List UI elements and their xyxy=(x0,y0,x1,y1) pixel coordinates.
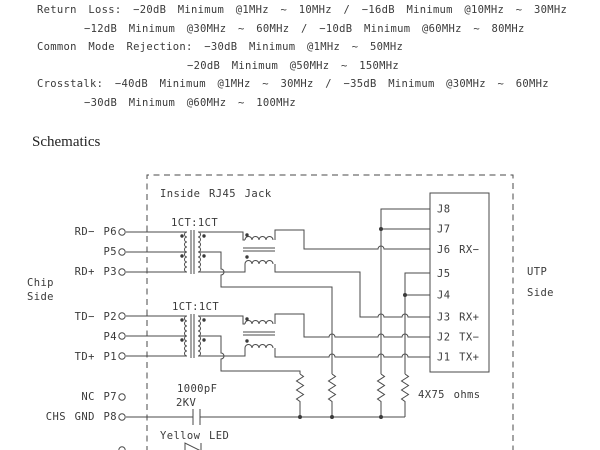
termination-resistors xyxy=(200,374,409,417)
rx-choke xyxy=(243,237,275,264)
pin-label-p7: NC P7 xyxy=(81,391,117,403)
jack-pin-label-j2: J2 TX− xyxy=(437,332,479,344)
rj45-connector-box xyxy=(430,193,489,372)
tx-wiring xyxy=(198,314,430,374)
jack-pin-label-j4: J4 xyxy=(437,290,450,302)
datasheet-page: Return Loss: −20dB Minimum @1MHz ~ 10MHz… xyxy=(0,0,600,450)
chip-pin-circles xyxy=(119,229,125,450)
led-label: Yellow LED xyxy=(160,430,229,442)
jack-pin-label-j5: J5 xyxy=(437,268,450,280)
jack-pin-label-j1: J1 TX+ xyxy=(437,352,479,364)
capacitor-rating-label: 2KV xyxy=(176,397,196,409)
tx-transformer-ratio-label: 1CT:1CT xyxy=(172,301,219,313)
tx-choke xyxy=(243,321,275,348)
resistors-label: 4X75 ohms xyxy=(418,389,481,401)
rx-transformer-ratio-label: 1CT:1CT xyxy=(171,217,218,229)
jack-pin-label-j6: J6 RX− xyxy=(437,244,479,256)
led-diode xyxy=(185,443,201,450)
utp-side-label-1: UTP xyxy=(527,266,547,278)
pin-label-p5: P5 xyxy=(104,246,117,258)
jack-pin-label-j7: J7 xyxy=(437,224,450,236)
rx-wiring xyxy=(198,230,430,374)
utp-side-label-2: Side xyxy=(527,287,554,299)
chassis-capacitor xyxy=(193,409,200,425)
pin-label-p8: CHS GND P8 xyxy=(46,411,117,423)
pin-label-p6: RD− P6 xyxy=(75,226,117,238)
chip-side-label-1: Chip xyxy=(27,277,54,289)
junction-dots xyxy=(298,227,407,419)
pin-label-p2: TD− P2 xyxy=(75,311,117,323)
jack-pin-label-j8: J8 xyxy=(437,204,450,216)
inside-jack-label: Inside RJ45 Jack xyxy=(160,188,272,200)
pin-label-p4: P4 xyxy=(104,331,117,343)
unused-pair-wiring xyxy=(381,209,430,374)
jack-pin-label-j3: J3 RX+ xyxy=(437,312,479,324)
schematic-diagram: Inside RJ45 Jack 1CT:1CT 1CT:1CT RD− P6 … xyxy=(0,0,600,450)
chip-side-label-2: Side xyxy=(27,291,54,303)
pin-label-p1: TD+ P1 xyxy=(75,351,117,363)
capacitor-value-label: 1000pF xyxy=(177,383,217,395)
pin-label-p3: RD+ P3 xyxy=(75,266,117,278)
